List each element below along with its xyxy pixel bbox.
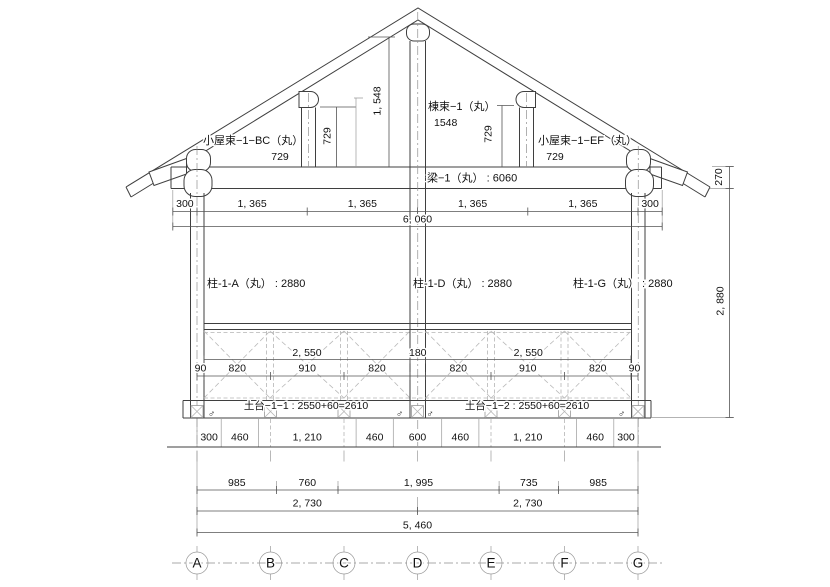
dim-beam-4: 1, 365 (568, 198, 597, 210)
grid-label-b: B (266, 556, 275, 571)
male-joint-icon: ♂ (208, 409, 215, 420)
dim-half-span-0: 2, 730 (293, 498, 322, 510)
dim-rail-lower-3: 820 (368, 363, 386, 375)
label-ridge-post-length: 1548 (434, 117, 458, 129)
dim-span-4: 985 (589, 477, 607, 489)
beam (171, 167, 662, 189)
label-strut-ef: 小屋束−1−EF（丸） (538, 134, 637, 147)
label-strut-bc: 小屋束−1−BC（丸） (203, 134, 303, 147)
label-strut-ef-length: 729 (546, 151, 564, 163)
dim-beam-5: 300 (641, 198, 659, 210)
dim-span-2: 1, 995 (404, 477, 433, 489)
dim-strut-left-value: 729 (322, 127, 334, 145)
beam-log-joint-right (626, 150, 654, 197)
dim-found-3: 460 (366, 432, 384, 444)
grid-label-a: A (192, 556, 201, 571)
dim-found-0: 300 (200, 432, 218, 444)
dim-ridge-height-value: 1, 548 (372, 86, 384, 115)
strut-bc-post (299, 92, 319, 168)
label-beam: 梁−1（丸） : 6060 (427, 171, 517, 185)
dim-beam-total: 6, 060 (403, 214, 432, 226)
beam-log-joint-left (184, 150, 212, 197)
dim-strut-right (497, 106, 514, 168)
dim-found-1: 460 (231, 432, 249, 444)
eave-joint-right (650, 159, 688, 186)
dim-beam-1: 1, 365 (237, 198, 266, 210)
dim-rail-lower-1: 820 (228, 363, 246, 375)
grid-label-g: G (633, 556, 644, 571)
grid-label-d: D (413, 556, 423, 571)
dim-beam-3: 1, 365 (458, 198, 487, 210)
dim-span-1: 760 (299, 477, 317, 489)
dim-rail-upper-2: 2, 550 (514, 347, 543, 359)
dim-found-2: 1, 210 (293, 432, 322, 444)
label-column-d: 柱-1-D（丸） : 2880 (413, 276, 512, 290)
dim-wall-height-value: 2, 880 (715, 286, 727, 315)
section-drawing: 小屋束−1−BC（丸） 729 棟束−1（丸） 1548 小屋束−1−EF（丸）… (0, 0, 830, 587)
dim-rail-lower-4: 820 (449, 363, 467, 375)
male-joint-icon: ♂ (396, 409, 403, 420)
dim-strut-right-value: 729 (483, 125, 495, 143)
dim-rail-upper-0: 2, 550 (292, 347, 321, 359)
dim-found-5: 460 (452, 432, 470, 444)
dim-span-3: 735 (520, 477, 538, 489)
dim-rail-upper-1: 180 (409, 347, 427, 359)
dim-found-6: 1, 210 (513, 432, 542, 444)
dim-found-7: 460 (586, 432, 604, 444)
dim-found-8: 300 (617, 432, 635, 444)
label-sill-2: 土台−1−2 : 2550+60=2610 (465, 399, 590, 412)
eave-joint-left (149, 159, 187, 186)
dim-beam-2: 1, 365 (348, 198, 377, 210)
male-joint-icon: ♂ (427, 409, 434, 420)
drawing-canvas: 小屋束−1−BC（丸） 729 棟束−1（丸） 1548 小屋束−1−EF（丸）… (0, 0, 830, 587)
dim-found-4: 600 (409, 432, 427, 444)
label-column-a: 柱-1-A（丸） : 2880 (207, 276, 305, 290)
male-joint-icon: ♂ (618, 409, 625, 420)
strut-ef-post (516, 92, 536, 168)
dim-rail-lower-6: 820 (589, 363, 607, 375)
grid-label-f: F (560, 556, 568, 571)
dim-eave-value: 270 (713, 168, 725, 186)
label-sill-1: 土台−1−1 : 2550+60=2610 (244, 399, 369, 412)
label-column-g: 柱-1-G（丸） : 2880 (573, 276, 673, 290)
grid-label-c: C (339, 556, 349, 571)
dim-span-0: 985 (228, 477, 246, 489)
dim-rail-lower-5: 910 (519, 363, 537, 375)
dim-rail-lower-2: 910 (298, 363, 316, 375)
label-strut-bc-length: 729 (271, 151, 289, 163)
dim-half-span-1: 2, 730 (513, 498, 542, 510)
dim-total-span: 5, 460 (403, 520, 432, 532)
grid-label-e: E (486, 556, 495, 571)
label-ridge-post: 棟束−1（丸） (428, 99, 496, 113)
dim-rail-lower-0: 90 (195, 363, 207, 375)
dim-rail-lower-7: 90 (629, 363, 641, 375)
dim-beam-0: 300 (176, 198, 194, 210)
ridge-post (407, 12, 430, 447)
